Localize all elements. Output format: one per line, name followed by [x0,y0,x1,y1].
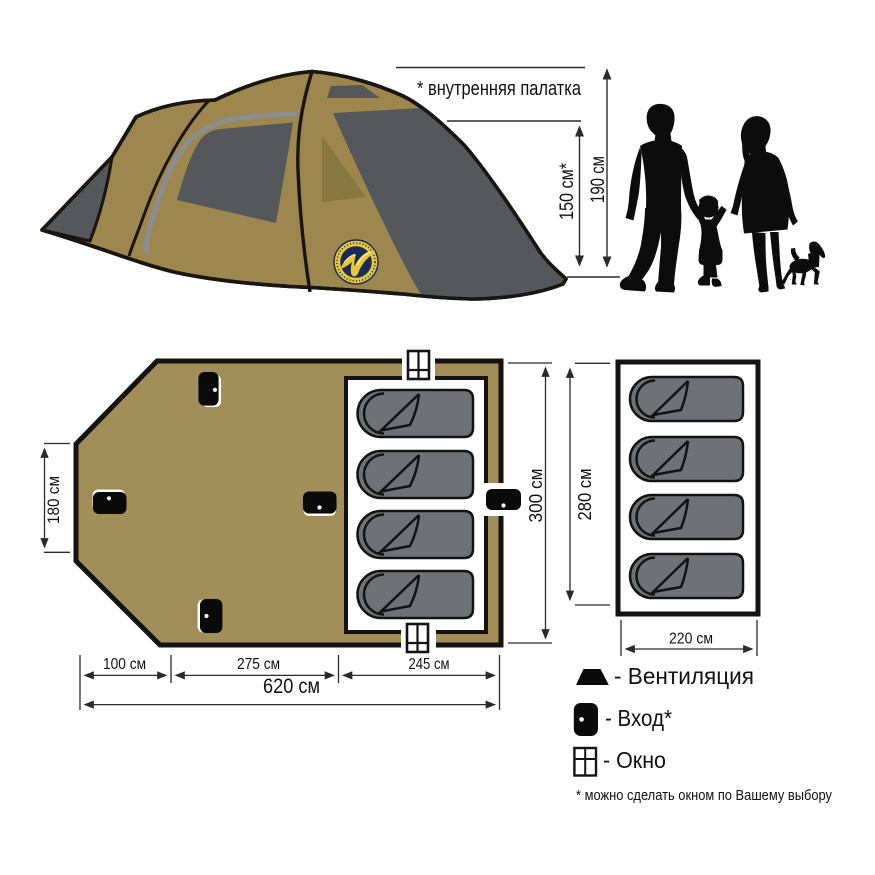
svg-text:180 см: 180 см [45,476,63,524]
svg-text:150 см*: 150 см* [557,162,578,220]
svg-text:245 см: 245 см [409,656,450,673]
svg-text:- Вентиляция: - Вентиляция [614,663,754,689]
svg-text:280 см: 280 см [575,469,595,521]
svg-text:220 см: 220 см [669,631,713,648]
svg-text:100 см: 100 см [103,656,146,673]
svg-text:- Окно: - Окно [603,747,666,773]
svg-text:275 см: 275 см [237,656,280,673]
svg-text:620 см: 620 см [263,675,320,698]
svg-text:190 см: 190 см [588,156,609,203]
svg-text:* внутренняя палатка: * внутренняя палатка [417,78,582,100]
svg-text:- Вход*: - Вход* [605,705,672,731]
svg-text:300 см: 300 см [526,469,546,523]
svg-text:* можно сделать окном по Вашем: * можно сделать окном по Вашему выбору [576,787,832,804]
